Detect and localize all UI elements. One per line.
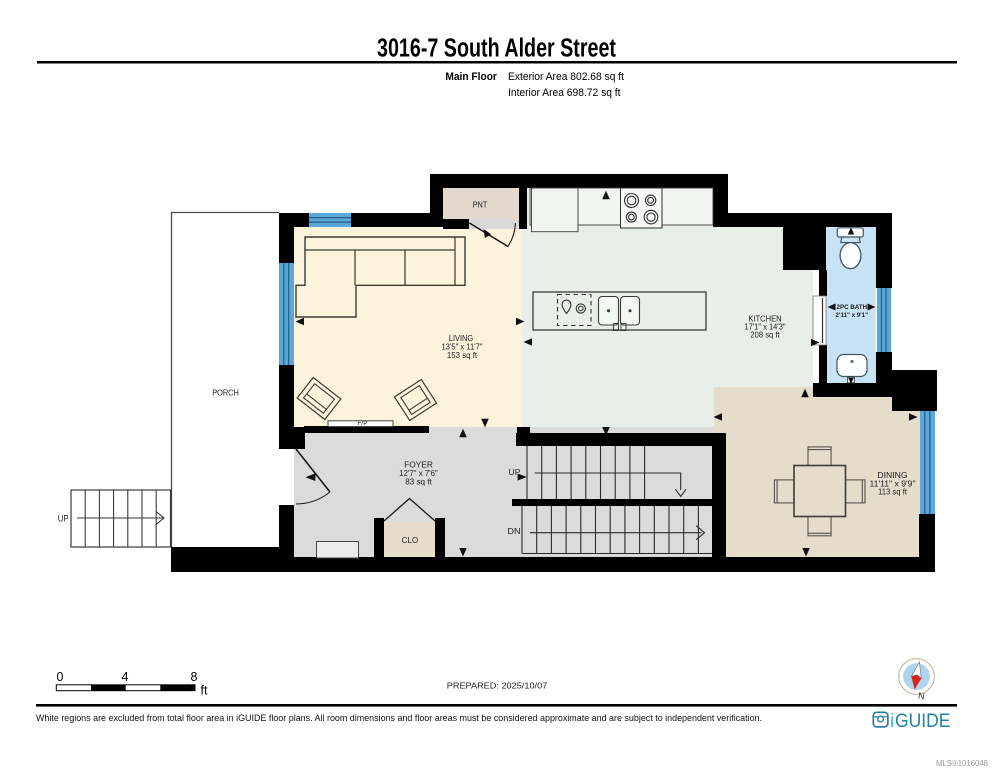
svg-text:F/P: F/P — [357, 420, 368, 427]
svg-text:0: 0 — [57, 670, 64, 684]
svg-text:DN: DN — [508, 526, 521, 536]
svg-text:153 sq ft: 153 sq ft — [447, 351, 478, 360]
svg-text:Interior Area 698.72 sq ft: Interior Area 698.72 sq ft — [508, 87, 621, 99]
svg-text:UP: UP — [58, 514, 69, 524]
svg-text:UP: UP — [509, 467, 521, 477]
svg-text:ft: ft — [201, 684, 208, 698]
svg-text:8: 8 — [191, 670, 198, 684]
svg-text:PREPARED: 2025/10/07: PREPARED: 2025/10/07 — [447, 681, 548, 691]
svg-text:PNT: PNT — [473, 201, 488, 210]
svg-text:PORCH: PORCH — [212, 388, 239, 398]
svg-text:White regions are excluded fro: White regions are excluded from total fl… — [36, 713, 762, 723]
svg-text:2PC BATH: 2PC BATH — [837, 304, 868, 311]
svg-text:Exterior Area 802.68 sq ft: Exterior Area 802.68 sq ft — [508, 71, 624, 83]
svg-text:GUIDE: GUIDE — [895, 710, 951, 732]
svg-text:83 sq ft: 83 sq ft — [405, 478, 432, 487]
svg-text:CLO: CLO — [402, 536, 419, 545]
svg-text:3016-7 South Alder Street: 3016-7 South Alder Street — [377, 35, 616, 63]
svg-text:4: 4 — [122, 670, 129, 684]
svg-text:208 sq ft: 208 sq ft — [750, 331, 780, 340]
svg-text:MLS®1016048: MLS®1016048 — [936, 758, 988, 768]
svg-text:113 sq ft: 113 sq ft — [878, 488, 908, 497]
svg-text:N: N — [918, 691, 926, 702]
svg-text:Main Floor: Main Floor — [445, 71, 497, 83]
svg-text:i: i — [890, 710, 894, 732]
svg-text:2'11" x 9'1": 2'11" x 9'1" — [836, 312, 869, 319]
